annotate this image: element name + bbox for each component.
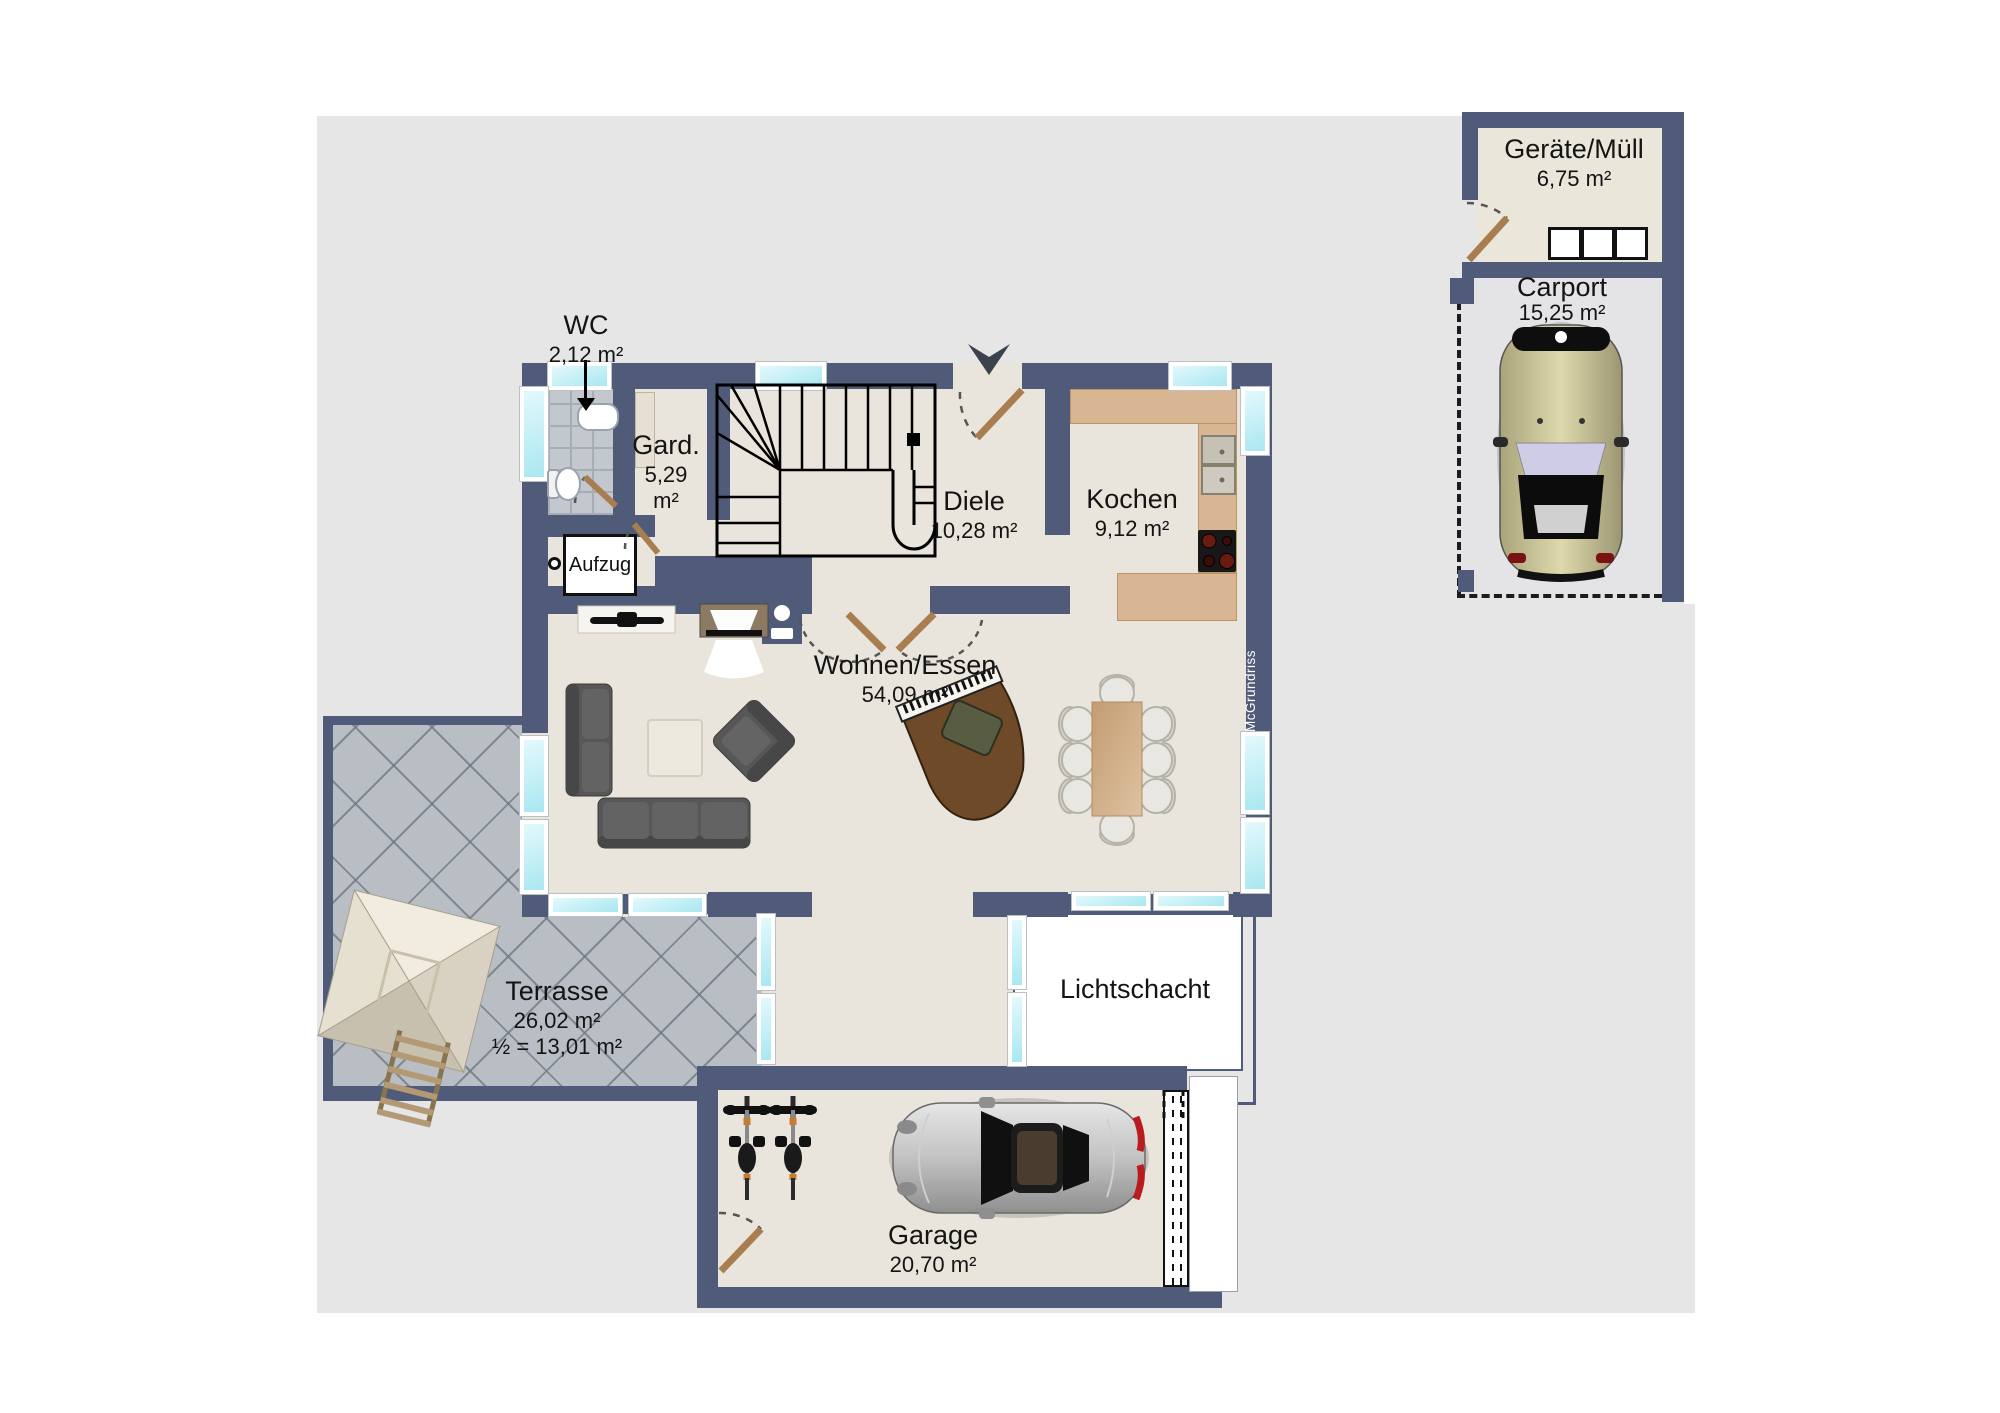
room-name: Kochen xyxy=(1086,484,1178,516)
door-leaf xyxy=(721,1229,761,1271)
wc-pointer-head xyxy=(577,398,595,411)
bicycle xyxy=(726,1096,768,1200)
door-leaf xyxy=(634,524,658,553)
room-name: Diele xyxy=(931,486,1018,518)
lichtschacht-label: Lichtschacht xyxy=(1060,974,1210,1006)
room-area: 54,09 m² xyxy=(814,682,997,708)
room-area: 20,70 m² xyxy=(888,1252,978,1278)
gard-label: Gard. 5,29 m² xyxy=(632,430,700,514)
room-name: Carport xyxy=(1517,274,1607,302)
terrasse-label: Terrasse 26,02 m² ½ = 13,01 m² xyxy=(492,976,622,1060)
door-leaf xyxy=(898,614,934,650)
car-garage xyxy=(889,1097,1149,1219)
car-carport xyxy=(1493,322,1629,582)
stair-newel xyxy=(907,433,920,446)
room-area: 10,28 m² xyxy=(931,518,1018,544)
room-name: Gard. xyxy=(632,430,700,462)
wc-door xyxy=(575,477,616,506)
door-swing-arc xyxy=(625,524,634,549)
room-area: 9,12 m² xyxy=(1086,516,1178,542)
door-leaf xyxy=(848,614,884,650)
sideboard xyxy=(578,606,675,633)
stove xyxy=(1198,530,1236,572)
room-name: Geräte/Müll xyxy=(1504,134,1644,166)
geraete-door xyxy=(1467,203,1507,260)
entrance-arrow-icon xyxy=(968,344,1010,375)
entrance-door xyxy=(960,390,1022,438)
room-area-unit: m² xyxy=(632,488,700,514)
room-name: Terrasse xyxy=(492,976,622,1008)
armchair xyxy=(710,697,798,785)
floor-plan: Aufzug xyxy=(0,0,2000,1413)
lightwell-drain-dashes xyxy=(1164,1090,1183,1118)
wohnen-essen-label: Wohnen/Essen 54,09 m² xyxy=(814,650,997,708)
door-swing-arc xyxy=(1467,203,1507,218)
watermark: McGrundriss xyxy=(1243,630,1271,752)
room-area: 6,75 m² xyxy=(1504,166,1644,192)
light-cone xyxy=(704,640,764,679)
room-name: Garage xyxy=(888,1220,978,1252)
kitchen-sink xyxy=(1202,436,1235,494)
room-area: 5,29 xyxy=(632,462,700,488)
kochen-label: Kochen 9,12 m² xyxy=(1086,484,1178,542)
room-name: Lichtschacht xyxy=(1060,974,1210,1006)
pavilion xyxy=(318,890,500,1072)
room-area-half: ½ = 13,01 m² xyxy=(492,1034,622,1060)
diele-label: Diele 10,28 m² xyxy=(931,486,1018,544)
tv-unit xyxy=(700,604,768,679)
room-area: 15,25 m² xyxy=(1517,302,1607,324)
toilet xyxy=(548,468,580,500)
sofa-three-seat xyxy=(598,798,750,848)
room-name: Wohnen/Essen xyxy=(814,650,997,682)
staircase xyxy=(717,385,935,556)
room-area: 26,02 m² xyxy=(492,1008,622,1034)
coffee-table xyxy=(648,720,702,776)
door-leaf xyxy=(1469,218,1507,260)
dining-set xyxy=(1059,675,1175,845)
fireplace-icon xyxy=(771,605,793,639)
bicycle xyxy=(772,1096,814,1200)
door-leaf xyxy=(585,477,616,506)
plan-decor xyxy=(0,0,2000,1413)
wc-pointer-line xyxy=(584,360,587,400)
sofa-two-seat xyxy=(566,684,612,796)
dining-table xyxy=(1092,702,1142,816)
door-leaf xyxy=(977,390,1022,438)
room-name: WC xyxy=(549,310,624,342)
garage-label: Garage 20,70 m² xyxy=(888,1220,978,1278)
carport-label: Carport 15,25 m² xyxy=(1517,274,1607,324)
gard-door xyxy=(625,524,658,553)
door-swing-arc xyxy=(719,1213,761,1229)
garage-side-door xyxy=(719,1213,761,1271)
door-swing-arc xyxy=(960,392,977,438)
geraete-muell-label: Geräte/Müll 6,75 m² xyxy=(1504,134,1644,192)
